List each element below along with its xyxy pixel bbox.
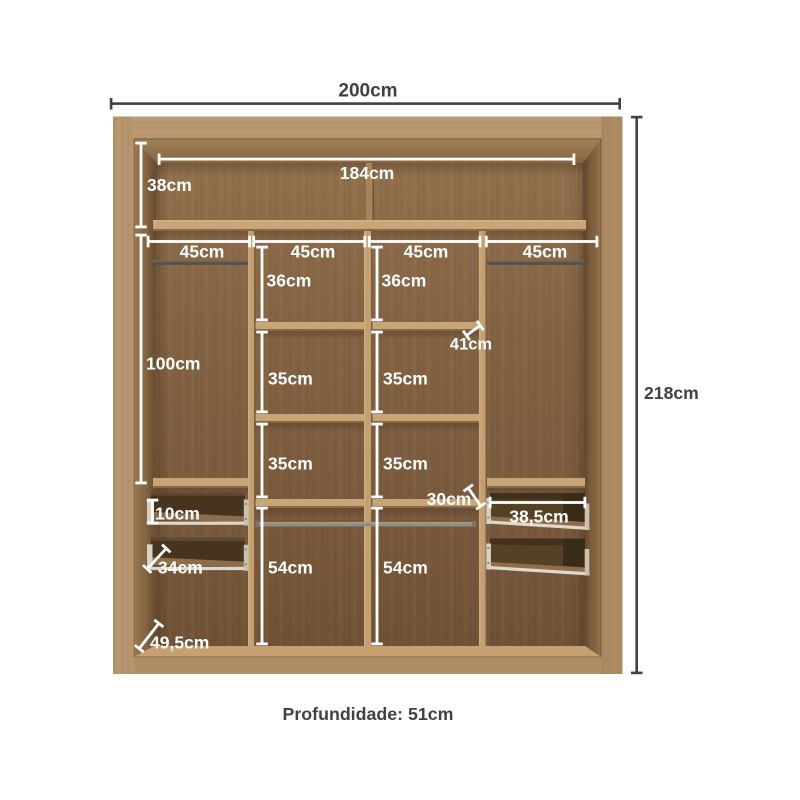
svg-text:41cm: 41cm <box>450 336 492 354</box>
svg-text:35cm: 35cm <box>268 454 313 474</box>
svg-text:Profundidade: 51cm: Profundidade: 51cm <box>283 704 454 724</box>
svg-text:100cm: 100cm <box>146 354 201 374</box>
svg-text:54cm: 54cm <box>383 558 428 578</box>
svg-text:34cm: 34cm <box>158 558 203 578</box>
svg-text:38,5cm: 38,5cm <box>509 507 568 527</box>
svg-text:35cm: 35cm <box>383 454 428 474</box>
svg-text:45cm: 45cm <box>291 242 336 262</box>
svg-text:38cm: 38cm <box>147 175 192 195</box>
svg-text:45cm: 45cm <box>404 242 449 262</box>
svg-text:35cm: 35cm <box>268 369 313 389</box>
svg-text:54cm: 54cm <box>268 558 313 578</box>
svg-text:45cm: 45cm <box>523 242 568 262</box>
svg-text:200cm: 200cm <box>338 81 397 102</box>
svg-text:36cm: 36cm <box>267 271 312 291</box>
svg-text:36cm: 36cm <box>382 271 427 291</box>
svg-text:49,5cm: 49,5cm <box>150 633 209 653</box>
svg-text:10cm: 10cm <box>155 504 200 524</box>
svg-text:30cm: 30cm <box>427 489 472 509</box>
svg-text:184cm: 184cm <box>340 163 395 183</box>
svg-text:45cm: 45cm <box>180 242 225 262</box>
svg-text:35cm: 35cm <box>383 369 428 389</box>
svg-text:218cm: 218cm <box>644 383 699 403</box>
